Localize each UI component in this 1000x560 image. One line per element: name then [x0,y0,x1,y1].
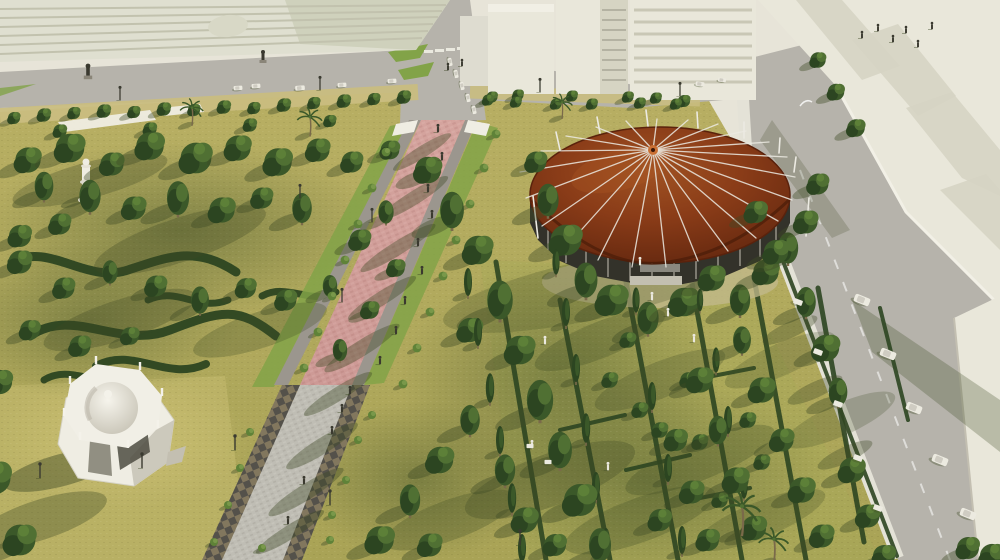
zebra-stripe [424,50,433,53]
gazebo-opening [88,440,112,476]
building-parapet [488,4,554,12]
building-block [630,0,756,100]
center-buildings [460,0,756,100]
zebra-stripe [435,49,444,52]
rendering-canvas [0,0,1000,560]
zebra-stripe [446,48,455,51]
building-block [488,4,554,94]
window-bands [634,10,752,82]
park-aerial-rendering [0,0,1000,560]
dome-finial [104,390,112,398]
tent-apex-hub [651,148,655,152]
entrance-steps [630,276,682,285]
monument-cap [83,159,90,166]
entrance-canopy [640,264,680,272]
